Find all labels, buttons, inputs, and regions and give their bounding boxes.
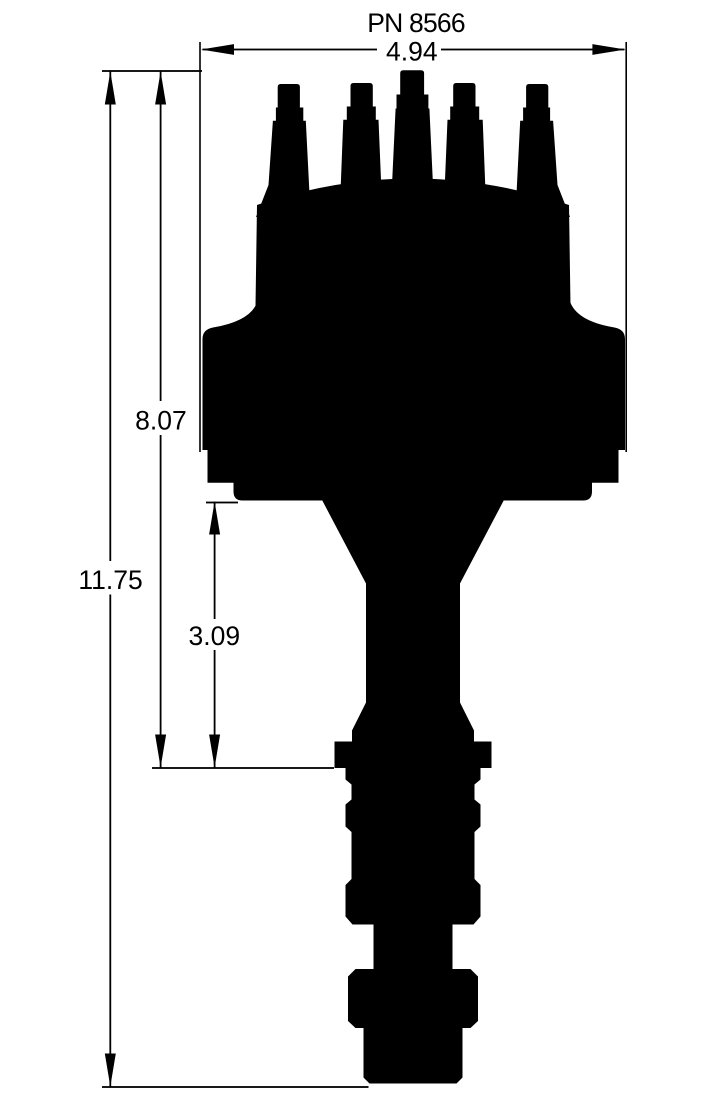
svg-text:11.75: 11.75 (78, 565, 142, 595)
svg-text:4.94: 4.94 (386, 36, 438, 66)
svg-text:PN 8566: PN 8566 (367, 8, 465, 38)
svg-text:3.09: 3.09 (189, 621, 241, 651)
svg-text:8.07: 8.07 (135, 405, 187, 435)
